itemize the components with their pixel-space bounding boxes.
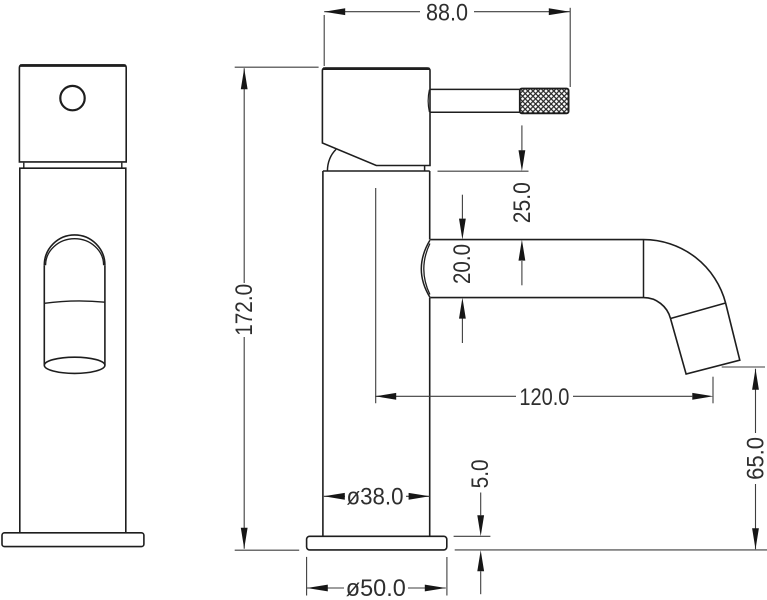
svg-text:65.0: 65.0 [742, 437, 767, 480]
svg-text:20.0: 20.0 [449, 244, 476, 284]
svg-text:ø50.0: ø50.0 [346, 575, 406, 600]
svg-text:120.0: 120.0 [519, 384, 569, 411]
svg-text:ø38.0: ø38.0 [347, 484, 404, 511]
svg-text:172.0: 172.0 [231, 284, 258, 336]
svg-text:25.0: 25.0 [509, 182, 536, 223]
svg-text:5.0: 5.0 [467, 459, 494, 488]
svg-text:88.0: 88.0 [426, 0, 468, 26]
